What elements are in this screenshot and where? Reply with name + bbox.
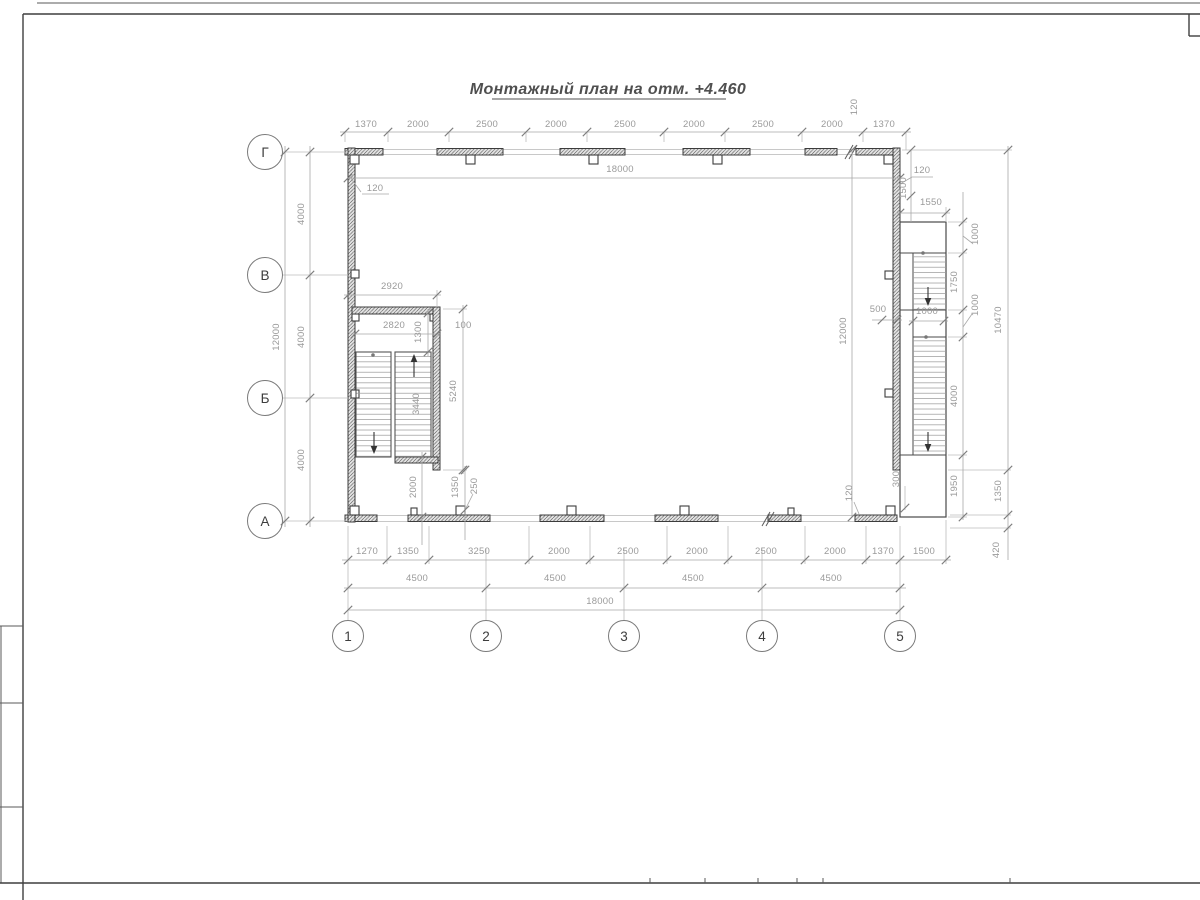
dim-label: 18000 bbox=[586, 596, 613, 607]
dim-label: 3440 bbox=[411, 393, 422, 415]
dim-label: 2000 bbox=[824, 546, 846, 557]
bottom-wall-panels bbox=[345, 515, 897, 522]
dim-label: 2000 bbox=[407, 119, 429, 130]
dim-label: 4000 bbox=[296, 449, 307, 471]
dim-label: 1350 bbox=[450, 476, 461, 498]
dim-label: 120 bbox=[849, 99, 860, 115]
dim-label: 2820 bbox=[383, 320, 405, 331]
handrail-dot bbox=[921, 251, 925, 255]
dim-label: 1500 bbox=[898, 177, 909, 199]
interior-staircase bbox=[352, 307, 440, 470]
dim-label: 1950 bbox=[949, 475, 960, 497]
page-title: Монтажный план на отм. +4.460 bbox=[470, 81, 746, 98]
dim-label: 120 bbox=[844, 485, 855, 501]
dim-label: 2000 bbox=[686, 546, 708, 557]
row-axis-label: Б bbox=[261, 391, 270, 406]
dim-label: 1370 bbox=[873, 119, 895, 130]
handrail-dot bbox=[371, 353, 375, 357]
dim-label: 1500 bbox=[913, 546, 935, 557]
dim-label: 4500 bbox=[682, 573, 704, 584]
dim-label: 2000 bbox=[683, 119, 705, 130]
dim-label: 2000 bbox=[545, 119, 567, 130]
dim-label: 1350 bbox=[397, 546, 419, 557]
col-axis-label: 4 bbox=[758, 629, 766, 644]
col-axis-label: 1 bbox=[344, 629, 352, 644]
floor-plan-drawing: Монтажный план на отм. +4.460 bbox=[0, 0, 1200, 900]
dim-label: 12000 bbox=[838, 317, 849, 344]
dim-label: 2920 bbox=[381, 281, 403, 292]
dim-label: 2000 bbox=[408, 476, 419, 498]
handrail-dot bbox=[924, 335, 928, 339]
dim-label: 2500 bbox=[752, 119, 774, 130]
dim-label: 4000 bbox=[949, 385, 960, 407]
stair-base-wall bbox=[395, 457, 438, 463]
row-axis-label: В bbox=[260, 268, 269, 283]
row-axis-label: А bbox=[260, 514, 269, 529]
dim-label: 5240 bbox=[448, 380, 459, 402]
stair-enclosure-top-wall bbox=[352, 307, 440, 314]
dim-label: 4000 bbox=[296, 326, 307, 348]
col-axis-label: 5 bbox=[896, 629, 904, 644]
dim-label: 2000 bbox=[821, 119, 843, 130]
dim-label: 1000 bbox=[916, 306, 938, 317]
dim-label: 2000 bbox=[548, 546, 570, 557]
dim-label: 10470 bbox=[993, 306, 1004, 333]
extension-lines bbox=[283, 132, 1012, 620]
dim-label: 2500 bbox=[614, 119, 636, 130]
dim-label: 100 bbox=[455, 320, 471, 331]
dim-label: 120 bbox=[914, 165, 930, 176]
dim-label: 3250 bbox=[468, 546, 490, 557]
dim-label: 1350 bbox=[993, 480, 1004, 502]
dim-label: 18000 bbox=[606, 164, 633, 175]
dim-label: 12000 bbox=[271, 323, 282, 350]
dim-label: 1750 bbox=[949, 271, 960, 293]
blueprint-sheet: Монтажный план на отм. +4.460 bbox=[0, 0, 1200, 900]
dim-label: 500 bbox=[870, 304, 886, 315]
dim-label: 1550 bbox=[920, 197, 942, 208]
dim-label: 2500 bbox=[755, 546, 777, 557]
dim-label: 1000 bbox=[970, 294, 981, 316]
dim-label: 420 bbox=[991, 542, 1002, 558]
dim-label: 2500 bbox=[476, 119, 498, 130]
dim-label: 1000 bbox=[970, 223, 981, 245]
row-axis-label: Г bbox=[261, 145, 269, 160]
dim-label: 4500 bbox=[544, 573, 566, 584]
dim-label: 1270 bbox=[356, 546, 378, 557]
dim-label: 4000 bbox=[296, 203, 307, 225]
dim-label: 120 bbox=[367, 183, 383, 194]
dim-label: 2500 bbox=[617, 546, 639, 557]
dim-label: 1370 bbox=[355, 119, 377, 130]
drawing-title: Монтажный план на отм. +4.460 bbox=[470, 81, 746, 99]
dim-label: 4500 bbox=[406, 573, 428, 584]
dim-label: 4500 bbox=[820, 573, 842, 584]
dim-label: 1370 bbox=[872, 546, 894, 557]
dim-label: 300 bbox=[891, 471, 902, 487]
col-axis-label: 3 bbox=[620, 629, 628, 644]
dim-label: 1300 bbox=[413, 321, 424, 343]
sheet-frame bbox=[0, 3, 1200, 900]
dim-label: 250 bbox=[469, 478, 480, 494]
col-axis-label: 2 bbox=[482, 629, 490, 644]
ext-stair-flight-lower bbox=[913, 338, 946, 455]
exterior-staircase bbox=[900, 222, 946, 517]
